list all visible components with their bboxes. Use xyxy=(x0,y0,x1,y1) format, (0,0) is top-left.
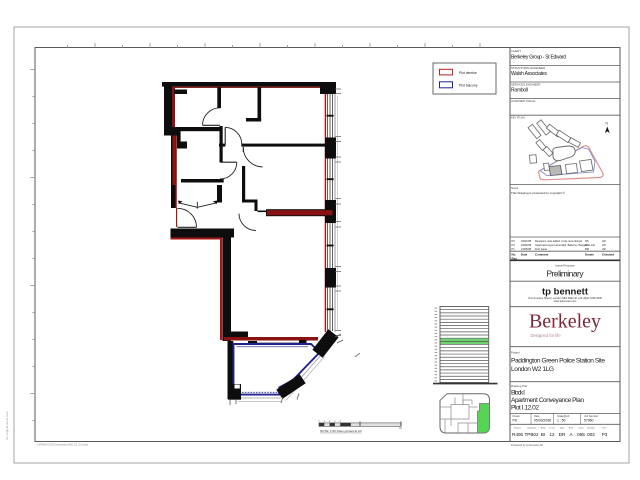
svg-text:BM: BM xyxy=(585,247,589,251)
svg-text:Drawing Title: Drawing Title xyxy=(511,384,528,388)
svg-text:Plot demise: Plot demise xyxy=(459,71,477,75)
svg-text:First Issue: First Issue xyxy=(535,247,548,251)
svg-text:Role: Role xyxy=(569,427,574,429)
svg-text:P2: P2 xyxy=(512,243,516,247)
svg-text:Comment: Comment xyxy=(535,253,548,257)
svg-text:Rev.: Rev. xyxy=(512,256,518,260)
svg-text:www.tpbennett.com: www.tpbennett.com xyxy=(554,299,577,303)
svg-text:Job Number: Job Number xyxy=(584,414,598,418)
svg-text:002: 002 xyxy=(587,432,595,437)
svg-text:PS: PS xyxy=(513,419,518,423)
svg-text:Issue Purpose: Issue Purpose xyxy=(555,264,575,268)
svg-text:CLIENT: CLIENT xyxy=(511,49,521,53)
svg-text:LICENSED VISUAL: LICENSED VISUAL xyxy=(511,99,536,103)
svg-text:Project: Project xyxy=(511,350,520,354)
svg-text:SERVICES ENGINEER: SERVICES ENGINEER xyxy=(511,82,540,86)
svg-text:57960: 57960 xyxy=(584,419,594,423)
svg-text:Paddington Green Police Statio: Paddington Green Police Station Site xyxy=(511,358,605,365)
svg-text:Plot balcony: Plot balcony xyxy=(459,84,478,88)
svg-text:Type: Type xyxy=(560,427,566,429)
svg-text:Class: Class xyxy=(578,427,584,429)
svg-text:Revisions note added. Units re: Revisions note added. Units renumbered xyxy=(535,239,583,243)
svg-text:Block I: Block I xyxy=(511,389,525,396)
svg-text:055: 055 xyxy=(577,432,585,437)
svg-text:P3: P3 xyxy=(512,239,516,243)
svg-text:Number: Number xyxy=(587,426,595,429)
svg-text:RS: RS xyxy=(585,239,589,243)
svg-text:LW: LW xyxy=(602,243,606,247)
svg-text:1 : 50: 1 : 50 xyxy=(557,419,566,423)
svg-text:Berkeley: Berkeley xyxy=(529,311,602,333)
svg-text:Checked: Checked xyxy=(602,253,614,257)
svg-text:Walsh Associates: Walsh Associates xyxy=(511,71,548,77)
svg-text:R406: R406 xyxy=(512,432,523,437)
svg-text:London W2 1LG: London W2 1LG xyxy=(511,366,554,373)
svg-text:NOTE: 1:50 when printed at A3: NOTE: 1:50 when printed at A3 xyxy=(320,429,362,433)
svg-text:One America Street | London SE: One America Street | London SE1 0NE UK +… xyxy=(528,296,603,300)
svg-text:Notes: Notes xyxy=(511,186,519,190)
svg-text:Drawn: Drawn xyxy=(513,414,521,418)
svg-text:Level: Level xyxy=(549,427,555,429)
svg-text:Berkeley Group - St Edward: Berkeley Group - St Edward xyxy=(511,55,566,61)
svg-text:A1 original sheet size: A1 original sheet size xyxy=(5,411,9,440)
svg-text:STRUCTURAL ENGINEER: STRUCTURAL ENGINEER xyxy=(511,66,545,70)
svg-text:TPB02: TPB02 xyxy=(524,432,538,437)
svg-text:P1: P1 xyxy=(512,247,516,251)
svg-text:18/06/08: 18/06/08 xyxy=(521,243,532,247)
svg-text:05/03/2008: 05/03/2008 xyxy=(534,419,551,423)
svg-text:Originator: Originator xyxy=(527,426,537,429)
svg-text:Produced by tp bennett LLP: Produced by tp bennett LLP xyxy=(511,443,543,447)
svg-text:Designed for life: Designed for life xyxy=(531,333,562,338)
svg-text:Drawn: Drawn xyxy=(585,253,594,257)
svg-text:Preliminary: Preliminary xyxy=(547,268,585,278)
svg-text:21/05/08: 21/05/08 xyxy=(521,247,532,251)
svg-text:Apartment Conveyance Plan: Apartment Conveyance Plan xyxy=(511,397,584,404)
svg-text:Project: Project xyxy=(514,426,521,429)
svg-text:LW: LW xyxy=(602,247,606,251)
svg-text:RS: RS xyxy=(585,243,589,247)
svg-text:02/07/08: 02/07/08 xyxy=(521,239,532,243)
svg-text:Plot I.12.02: Plot I.12.02 xyxy=(511,405,539,412)
svg-text:12: 12 xyxy=(549,432,555,437)
svg-text:Scale@A3: Scale@A3 xyxy=(557,414,570,418)
svg-text:Date: Date xyxy=(534,414,540,418)
svg-text:P3: P3 xyxy=(602,432,608,437)
svg-text:Date: Date xyxy=(521,253,528,257)
svg-text:J:\R406\CAD\Conveyance\BI_12_0: J:\R406\CAD\Conveyance\BI_12_02.dwg xyxy=(37,443,89,447)
svg-text:LW: LW xyxy=(602,239,606,243)
svg-text:KEY PLAN: KEY PLAN xyxy=(511,116,525,120)
svg-text:This Drawing is protected by c: This Drawing is protected by copyright © xyxy=(511,191,566,195)
svg-text:BI: BI xyxy=(541,432,545,437)
svg-text:Bldg: Bldg xyxy=(541,427,546,429)
svg-text:Ramboll: Ramboll xyxy=(511,87,528,93)
svg-text:DR: DR xyxy=(559,432,566,437)
